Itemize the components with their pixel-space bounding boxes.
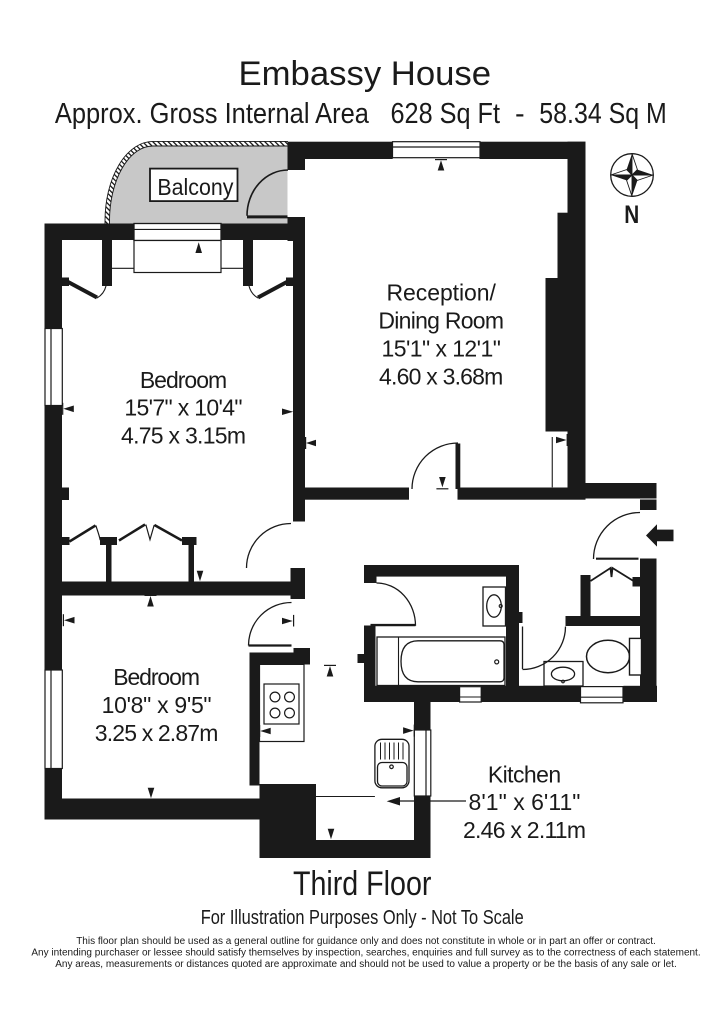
svg-text:628 Sq Ft: 628 Sq Ft xyxy=(391,98,501,130)
svg-text:N: N xyxy=(624,201,639,229)
svg-text:-: - xyxy=(515,98,525,130)
svg-text:Reception/: Reception/ xyxy=(387,280,497,306)
svg-text:Balcony: Balcony xyxy=(157,174,233,200)
svg-text:10'8" x 9'5": 10'8" x 9'5" xyxy=(102,692,212,718)
svg-text:This floor plan should be used: This floor plan should be used as a gene… xyxy=(76,936,656,947)
svg-text:58.34 Sq M: 58.34 Sq M xyxy=(539,98,667,130)
svg-text:8'1" x 6'11": 8'1" x 6'11" xyxy=(469,789,581,815)
svg-text:2.46 x 2.11m: 2.46 x 2.11m xyxy=(463,817,586,843)
svg-text:4.60 x 3.68m: 4.60 x 3.68m xyxy=(379,363,503,389)
svg-text:Bedroom: Bedroom xyxy=(140,367,227,393)
svg-text:Third Floor: Third Floor xyxy=(293,865,432,903)
svg-text:Embassy House: Embassy House xyxy=(239,55,492,93)
svg-text:Bedroom: Bedroom xyxy=(113,664,200,690)
svg-text:Dining Room: Dining Room xyxy=(378,308,504,334)
svg-text:15'7" x 10'4": 15'7" x 10'4" xyxy=(124,395,242,421)
svg-text:Approx. Gross Internal Area: Approx. Gross Internal Area xyxy=(55,98,370,130)
svg-text:3.25 x 2.87m: 3.25 x 2.87m xyxy=(95,720,219,746)
svg-text:For Illustration Purposes Only: For Illustration Purposes Only - Not To … xyxy=(201,906,524,929)
svg-text:15'1" x 12'1": 15'1" x 12'1" xyxy=(382,336,501,362)
svg-text:Kitchen: Kitchen xyxy=(488,761,561,787)
svg-text:Any areas, measurements or dis: Any areas, measurements or distances quo… xyxy=(55,959,676,970)
svg-text:4.75 x 3.15m: 4.75 x 3.15m xyxy=(121,422,246,448)
svg-text:Any intending purchaser or les: Any intending purchaser or lessee should… xyxy=(31,948,700,959)
